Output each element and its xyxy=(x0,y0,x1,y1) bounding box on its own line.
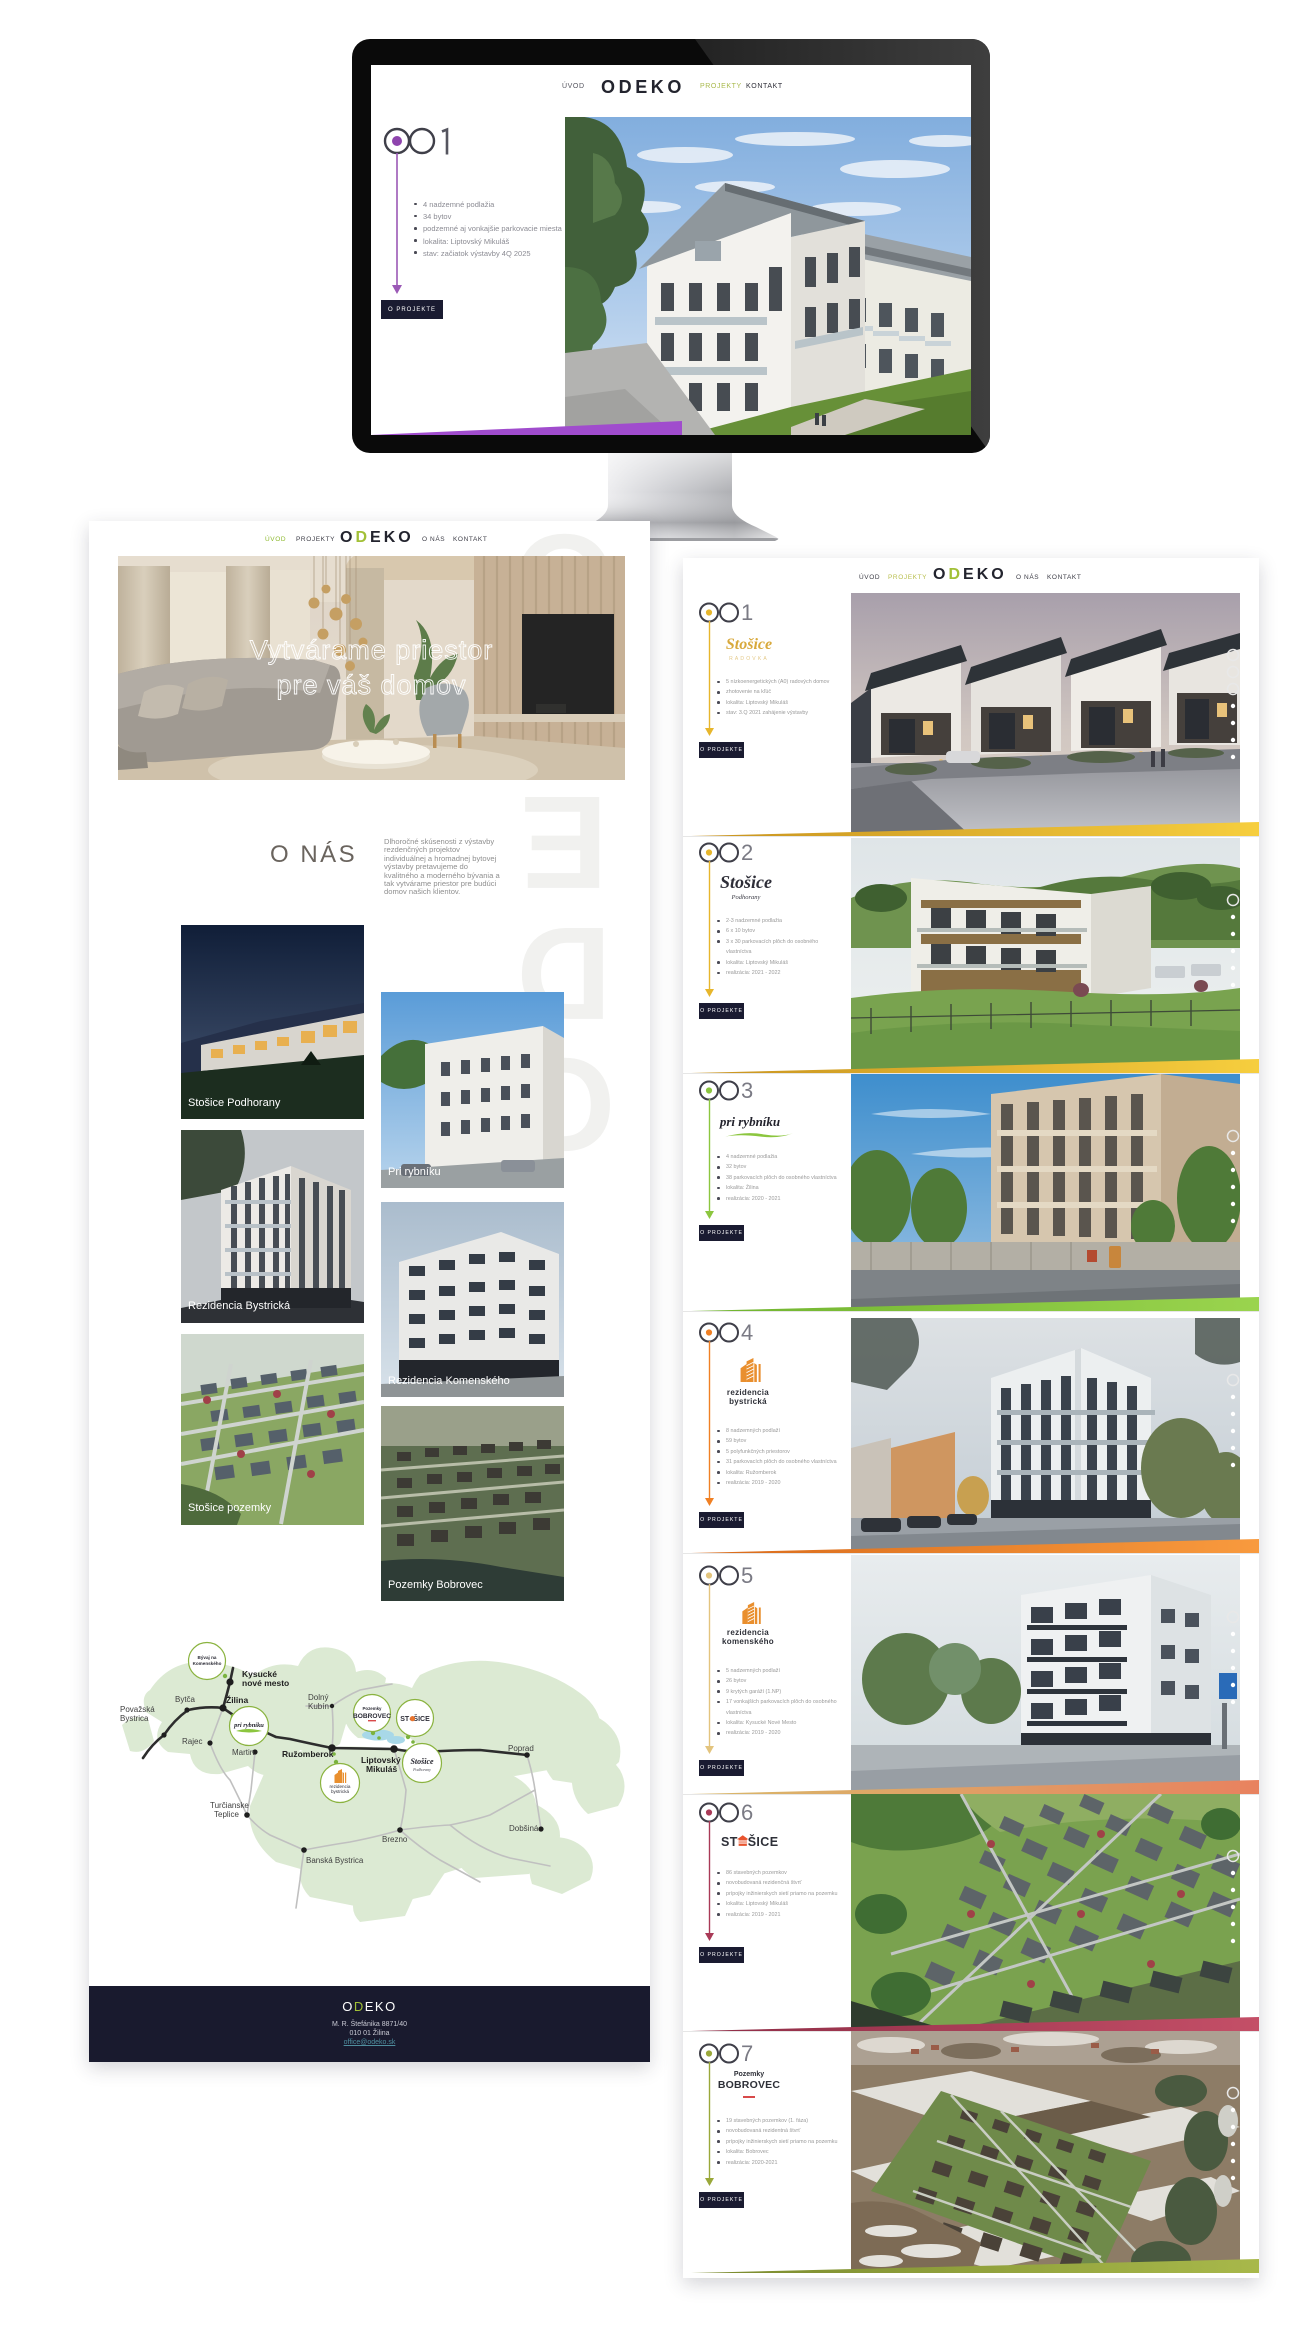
svg-text:Turčianske: Turčianske xyxy=(210,1801,249,1810)
svg-text:Považská: Považská xyxy=(120,1705,155,1714)
svg-text:Poprad: Poprad xyxy=(508,1744,534,1753)
svg-text:Žilina: Žilina xyxy=(226,1694,248,1705)
svg-text:Banská Bystrica: Banská Bystrica xyxy=(306,1856,364,1865)
svg-text:Bývaj na: Bývaj na xyxy=(198,1655,217,1660)
svg-text:Rajec: Rajec xyxy=(182,1737,202,1746)
svg-text:Mikuláš: Mikuláš xyxy=(366,1764,397,1774)
svg-text:Ružomberok: Ružomberok xyxy=(282,1749,334,1759)
svg-text:Stošice: Stošice xyxy=(410,1757,434,1766)
svg-text:Martin: Martin xyxy=(232,1748,254,1757)
svg-text:Teplice: Teplice xyxy=(214,1810,239,1819)
svg-text:Komenského: Komenského xyxy=(193,1661,222,1666)
svg-text:nové mesto: nové mesto xyxy=(242,1678,289,1688)
svg-text:Bystrica: Bystrica xyxy=(120,1714,149,1723)
svg-text:Brezno: Brezno xyxy=(382,1835,408,1844)
svg-text:Bytča: Bytča xyxy=(175,1695,196,1704)
svg-text:Podhorany: Podhorany xyxy=(412,1767,431,1772)
svg-text:Dolný: Dolný xyxy=(308,1693,328,1702)
svg-text:pri rybníku: pri rybníku xyxy=(233,1722,264,1729)
svg-text:Dobšiná: Dobšiná xyxy=(509,1824,539,1833)
svg-text:ST●ŠICE: ST●ŠICE xyxy=(400,1714,430,1723)
svg-text:Pozemky: Pozemky xyxy=(362,1706,382,1711)
svg-text:BOBROVEC: BOBROVEC xyxy=(353,1713,391,1720)
svg-text:Kubín: Kubín xyxy=(308,1702,329,1711)
svg-text:bystrická: bystrická xyxy=(331,1789,350,1794)
